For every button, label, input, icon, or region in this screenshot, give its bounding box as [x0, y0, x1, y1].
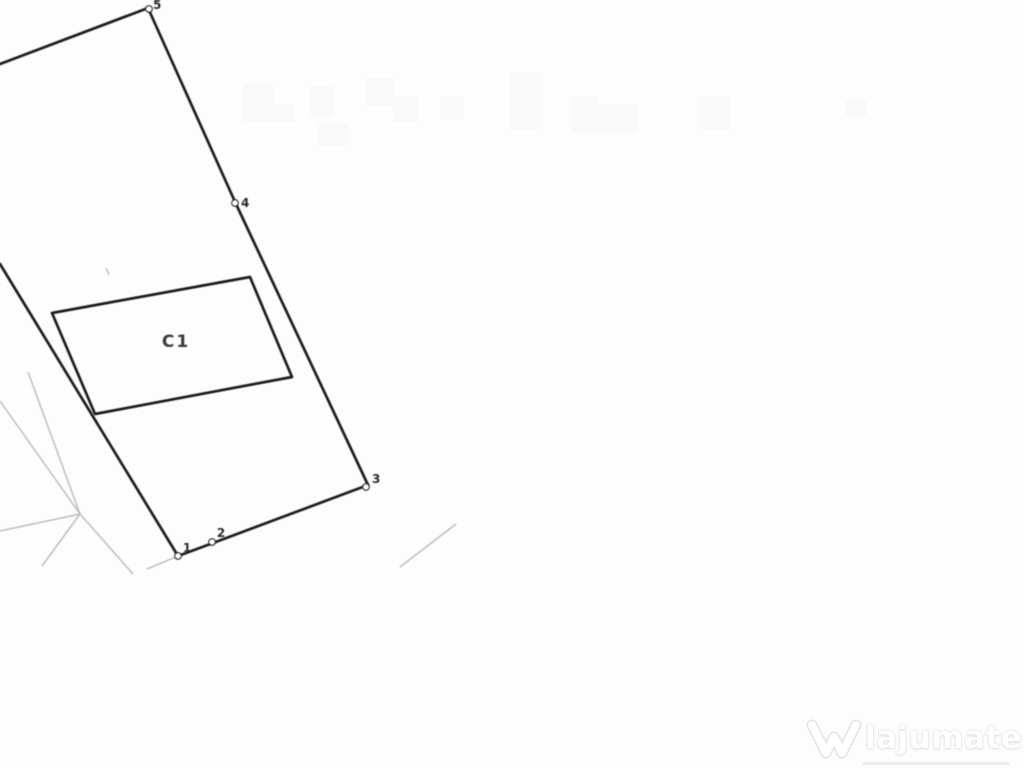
vertex-marker-1	[175, 553, 181, 559]
scanned-site-plan: C1 1 2 3 4 5 lajumate.ro	[0, 0, 1024, 768]
vertex-label-5: 5	[153, 0, 161, 12]
site-plan-drawing: C1 1 2 3 4 5	[0, 0, 1024, 768]
vertex-label-1: 1	[183, 541, 191, 555]
boundary-edge-1-left	[0, 264, 178, 556]
vertex-label-2: 2	[217, 526, 225, 540]
building-label: C1	[162, 332, 190, 352]
vertex-marker-4	[232, 200, 238, 206]
vertex-label-4: 4	[241, 196, 249, 210]
boundary-edge-5-4	[148, 8, 236, 204]
vertex-marker-5	[146, 6, 152, 12]
vertex-marker-2	[209, 539, 215, 545]
boundary-edge-3-2	[213, 485, 368, 543]
boundary-edge-4-3	[236, 204, 368, 485]
boundary-edge-5-left	[0, 8, 148, 64]
neighbor-parcel-lines	[0, 268, 456, 574]
scan-artifacts	[243, 72, 867, 146]
watermark-shadow-streak	[862, 762, 1010, 765]
vertex-marker-3	[363, 484, 369, 490]
vertex-label-3: 3	[372, 472, 380, 486]
